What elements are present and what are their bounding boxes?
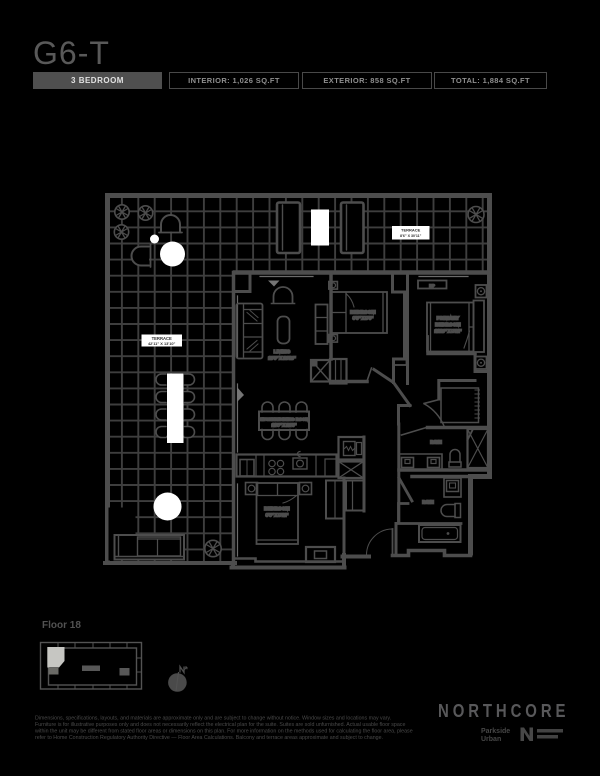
svg-text:BATH: BATH — [422, 500, 433, 505]
svg-text:10'0" X 10'10": 10'0" X 10'10" — [268, 356, 295, 361]
svg-text:LIVING: LIVING — [274, 349, 291, 354]
svg-text:Urban: Urban — [481, 736, 501, 743]
svg-text:9'0" X 9'0": 9'0" X 9'0" — [353, 316, 373, 321]
svg-text:11'6" X 12'0": 11'6" X 12'0" — [272, 423, 297, 428]
svg-text:9'6" X 9'11": 9'6" X 9'11" — [266, 513, 289, 518]
svg-text:BEDROOM: BEDROOM — [435, 322, 460, 327]
svg-text:KITCHEN/DINING ROOM: KITCHEN/DINING ROOM — [259, 417, 310, 422]
svg-text:BEDROOM: BEDROOM — [264, 506, 289, 511]
svg-text:11'10" X 9'11": 11'10" X 9'11" — [435, 329, 462, 334]
svg-text:BEDROOM: BEDROOM — [350, 310, 375, 315]
svg-text:BATH: BATH — [430, 440, 441, 445]
svg-text:PRIMARY: PRIMARY — [437, 316, 459, 321]
svg-text:TERRACE: TERRACE — [401, 228, 421, 233]
svg-text:DP: DP — [429, 284, 435, 288]
svg-text:8'6" X 30'11": 8'6" X 30'11" — [400, 234, 422, 238]
svg-text:42'11" X 13'10": 42'11" X 13'10" — [148, 341, 176, 346]
svg-text:Parkside: Parkside — [481, 728, 510, 735]
